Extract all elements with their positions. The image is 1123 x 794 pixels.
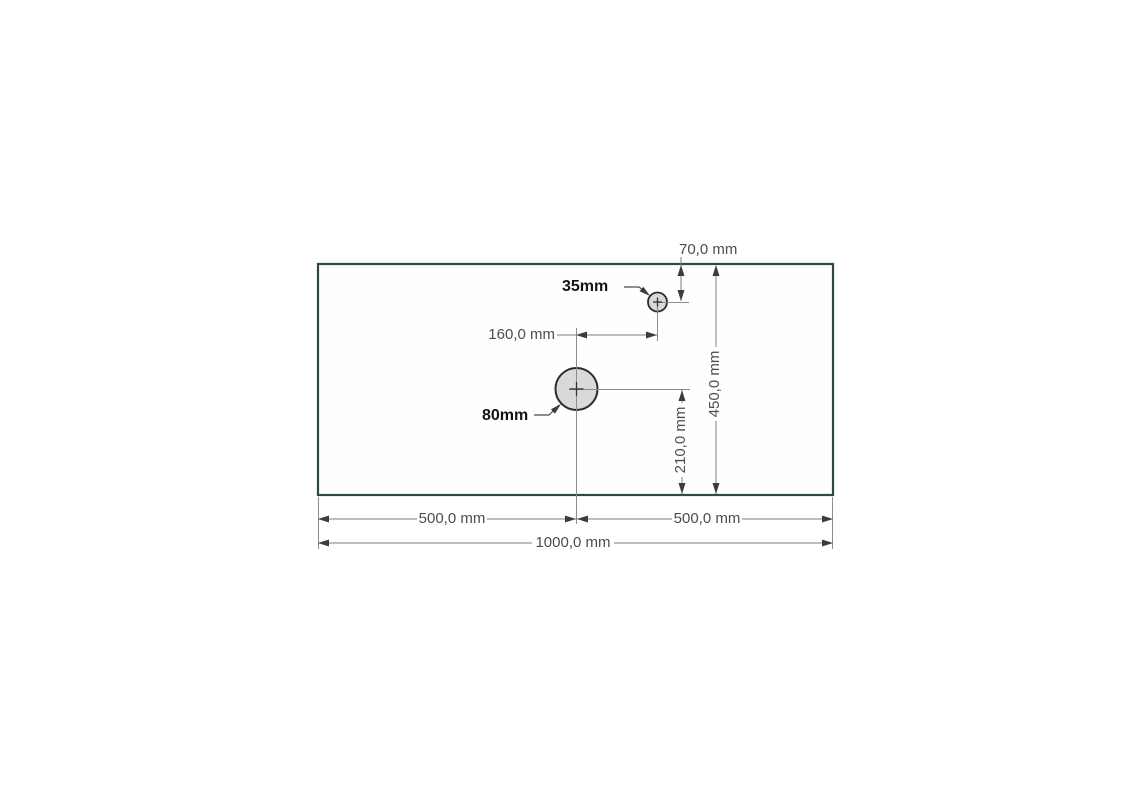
dim-text-210mm: 210,0 mm: [673, 403, 689, 477]
dim-text-1000mm: 1000,0 mm: [532, 535, 614, 551]
dim-text-160mm: 160,0 mm: [487, 327, 555, 343]
arrow-500mm-left-inner: [565, 516, 576, 523]
drawing-geometry: [0, 0, 1123, 794]
arrow-500mm-right-inner: [577, 516, 588, 523]
technical-drawing-canvas: 70,0 mm 160,0 mm 450,0 mm 210,0 mm 500,0…: [0, 0, 1123, 794]
callout-80mm: 80mm: [482, 407, 528, 424]
dim-text-500mm-right: 500,0 mm: [672, 511, 742, 527]
dim-text-70mm: 70,0 mm: [679, 242, 737, 258]
dim-text-450mm: 450,0 mm: [707, 347, 723, 421]
arrow-500mm-left-outer: [318, 516, 329, 523]
arrow-1000mm-left: [318, 540, 329, 547]
arrow-500mm-right-outer: [822, 516, 833, 523]
dim-text-500mm-left: 500,0 mm: [417, 511, 487, 527]
callout-35mm: 35mm: [562, 278, 608, 295]
arrow-1000mm-right: [822, 540, 833, 547]
